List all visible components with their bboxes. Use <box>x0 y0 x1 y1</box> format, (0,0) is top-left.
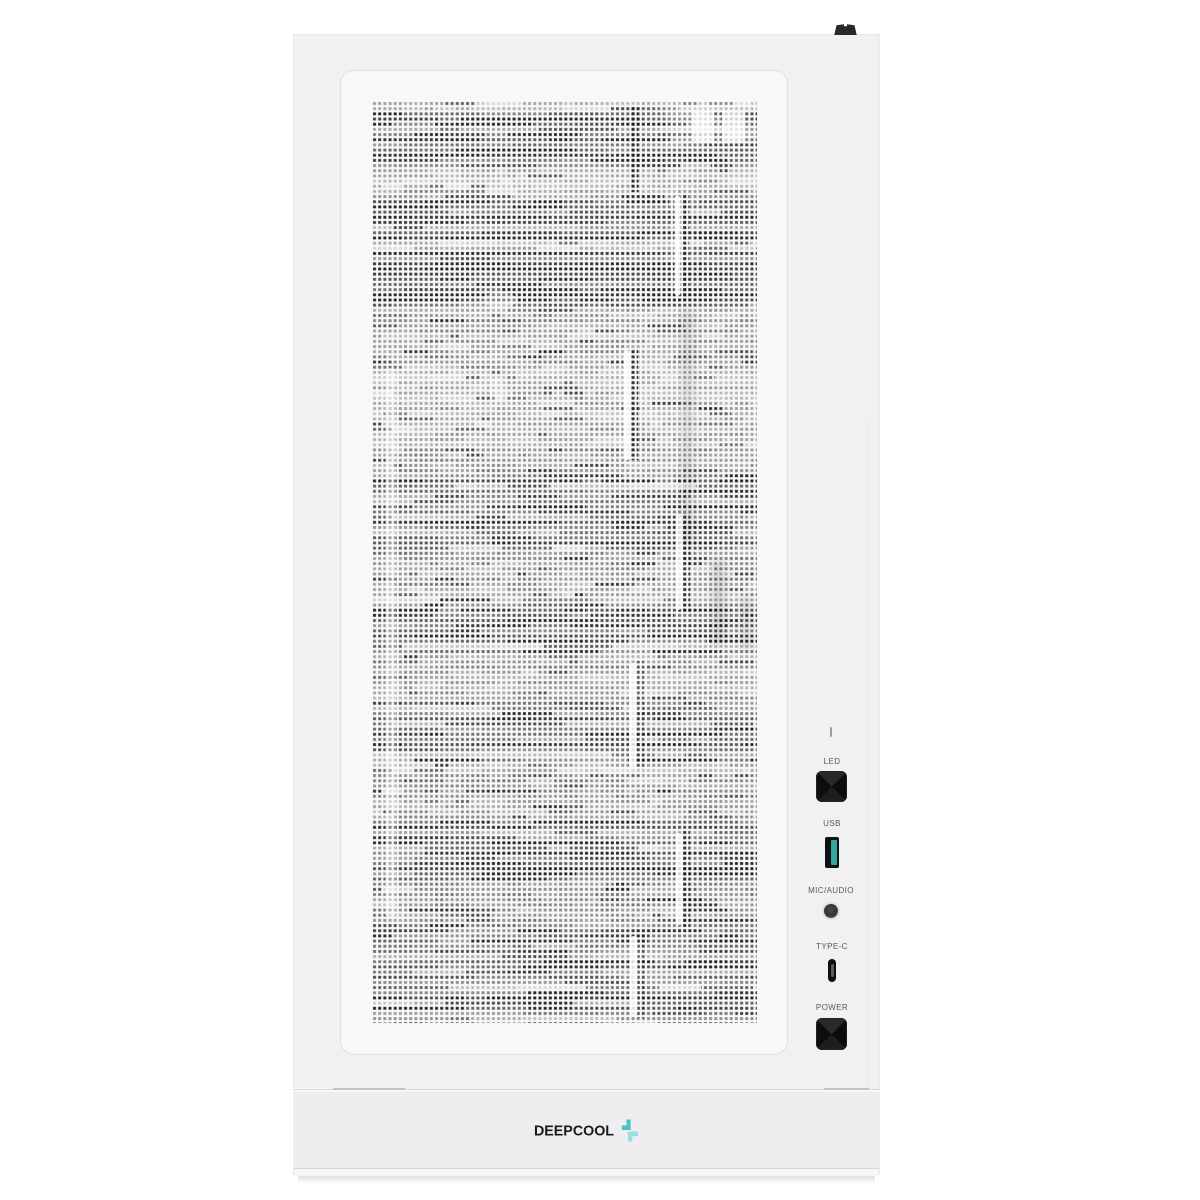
svg-text:DEEPCOOL: DEEPCOOL <box>534 1123 614 1140</box>
